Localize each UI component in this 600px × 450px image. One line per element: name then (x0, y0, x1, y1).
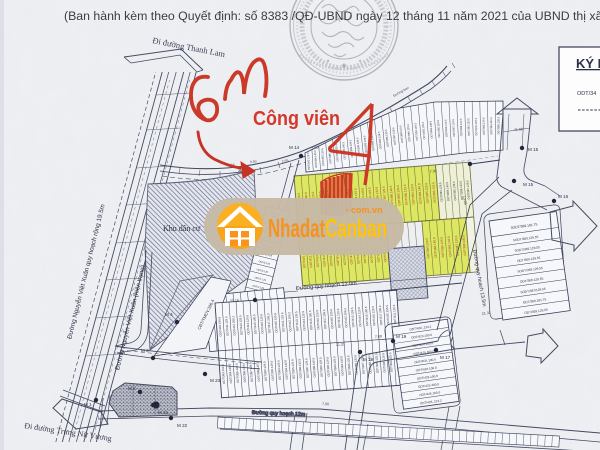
svg-text:M 3: M 3 (141, 348, 149, 353)
svg-text:Khu dân cư: Khu dân cư (163, 224, 201, 233)
svg-text:NhadatCanban: NhadatCanban (268, 213, 387, 243)
svg-text:(Ban hành kèm theo Quyết định:: (Ban hành kèm theo Quyết định: số 8383 /… (64, 9, 600, 23)
svg-text:21.31: 21.31 (336, 342, 345, 347)
svg-text:ODT/383.129.5: ODT/383.129.5 (481, 117, 485, 135)
svg-text:9.50: 9.50 (250, 160, 257, 164)
svg-text:M 21: M 21 (158, 410, 169, 415)
svg-text:M 23: M 23 (210, 378, 221, 383)
svg-text:M 2: M 2 (128, 386, 136, 391)
svg-text:M 15: M 15 (523, 182, 534, 187)
svg-text:M 4: M 4 (165, 312, 173, 317)
svg-text:7.00: 7.00 (375, 334, 382, 339)
svg-text:M 16: M 16 (558, 194, 569, 199)
svg-text:M 14: M 14 (289, 145, 300, 150)
svg-text:com.vn: com.vn (351, 205, 383, 215)
svg-text:ODT/388.140.5: ODT/388.140.5 (459, 118, 464, 136)
svg-text:M 1: M 1 (84, 402, 92, 407)
svg-text:M 19: M 19 (363, 357, 374, 362)
svg-text:★: ★ (358, 58, 362, 63)
svg-text:Công viên: Công viên (253, 108, 340, 130)
svg-text:M 22: M 22 (177, 423, 188, 428)
svg-text:ODT/389.129.5: ODT/389.129.5 (466, 118, 471, 136)
svg-text:M 17: M 17 (440, 355, 451, 360)
svg-text:★: ★ (326, 58, 330, 63)
svg-text:M 19: M 19 (396, 334, 407, 339)
svg-text:ODT/385.129.5: ODT/385.129.5 (497, 116, 501, 134)
svg-text:21.16: 21.16 (230, 298, 239, 303)
svg-text:7.00: 7.00 (322, 402, 329, 406)
svg-text:41.06: 41.06 (514, 127, 523, 132)
svg-text:ODT/384.140.0: ODT/384.140.0 (489, 117, 493, 135)
svg-text:KÝ H: KÝ H (576, 56, 600, 71)
svg-text:ODT/390.129.5: ODT/390.129.5 (474, 117, 479, 135)
svg-text:ODT/34: ODT/34 (577, 91, 596, 97)
svg-text:M 15: M 15 (528, 147, 539, 152)
